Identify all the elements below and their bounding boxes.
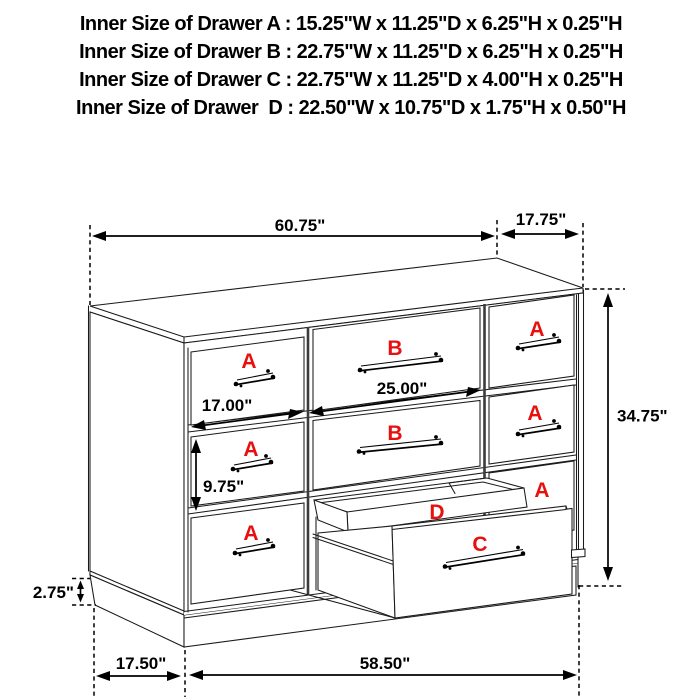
svg-text:17.00": 17.00" — [202, 396, 253, 415]
svg-text:17.75": 17.75" — [516, 210, 567, 229]
svg-text:D: D — [429, 501, 444, 524]
svg-text:58.50": 58.50" — [360, 654, 411, 673]
svg-text:60.75": 60.75" — [275, 216, 326, 235]
svg-text:C: C — [472, 533, 487, 556]
svg-text:B: B — [387, 422, 402, 445]
svg-text:2.75": 2.75" — [33, 583, 74, 602]
svg-text:34.75": 34.75" — [617, 407, 668, 426]
svg-text:A: A — [243, 438, 258, 461]
svg-text:A: A — [243, 522, 258, 545]
svg-text:Inner Size of Drawer A : 15.25: Inner Size of Drawer A : 15.25"W x 11.25… — [80, 13, 622, 35]
svg-text:A: A — [241, 350, 256, 373]
svg-text:B: B — [387, 337, 402, 360]
svg-text:Inner Size of Drawer D : 22.5: Inner Size of Drawer D : 22.50"W x 10.75… — [76, 97, 626, 119]
svg-text:Inner Size of Drawer C : 22.75: Inner Size of Drawer C : 22.75"W x 11.25… — [79, 69, 623, 91]
svg-text:A: A — [527, 402, 542, 425]
svg-text:A: A — [534, 479, 549, 502]
svg-text:9.75": 9.75" — [203, 477, 244, 496]
svg-text:A: A — [529, 318, 544, 341]
svg-text:17.50": 17.50" — [116, 654, 167, 673]
svg-text:25.00": 25.00" — [377, 379, 428, 398]
svg-text:Inner Size of Drawer B : 22.75: Inner Size of Drawer B : 22.75"W x 11.25… — [79, 41, 623, 63]
